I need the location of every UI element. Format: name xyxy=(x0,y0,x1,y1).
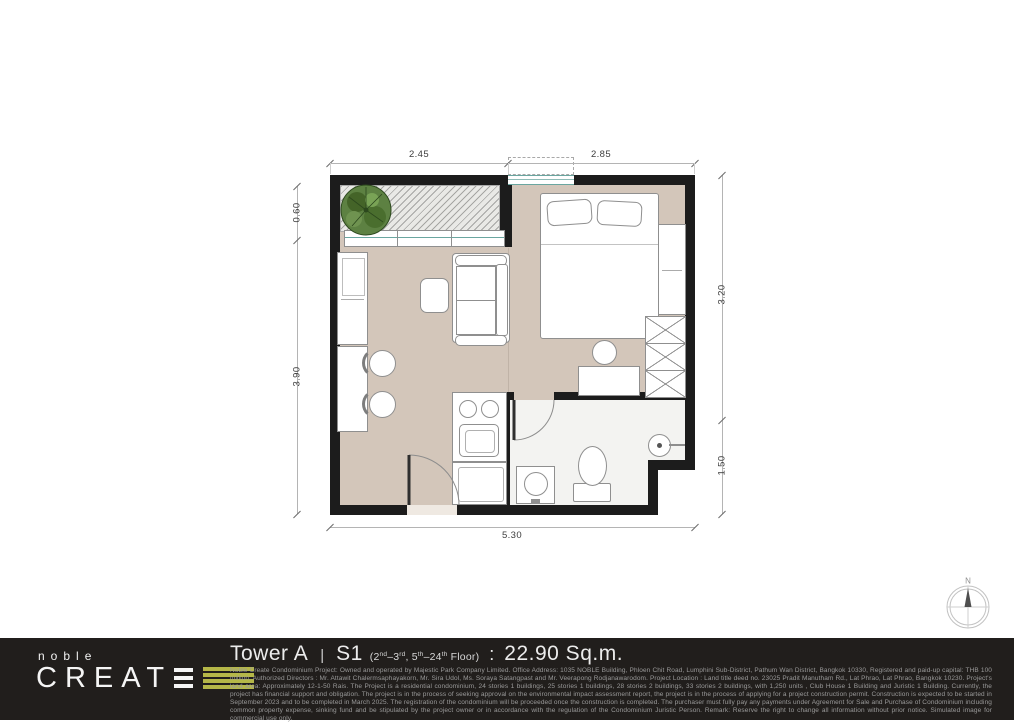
exterior-notch xyxy=(658,470,695,515)
title-separator: | xyxy=(320,647,324,664)
wall-right xyxy=(685,175,695,470)
dim-label-left-balcony: 0.60 xyxy=(291,188,304,238)
cabinet-inner-panel xyxy=(342,258,365,296)
unit-type: S1 xyxy=(336,642,363,666)
tall-cabinet xyxy=(337,252,368,345)
unit-area: 22.90 Sq.m. xyxy=(504,642,623,666)
appliance-unit xyxy=(452,462,507,505)
basin-tap xyxy=(531,499,540,504)
bedroom-window xyxy=(508,175,574,185)
bar xyxy=(174,668,193,672)
wardrobe xyxy=(645,316,686,398)
compass-north-icon: N xyxy=(947,577,989,629)
dim-label-top-left: 2.45 xyxy=(379,149,459,160)
appliance-inner xyxy=(458,467,504,502)
sofa-backrest xyxy=(496,264,508,336)
floor-range-part: (2 xyxy=(370,651,380,663)
toilet-bowl xyxy=(578,446,607,486)
floor-range-part: , 5 xyxy=(405,651,417,663)
compass-n-label: N xyxy=(965,577,971,586)
unit-title: Tower A | S1 (2nd–3rd, 5th–24th Floor) :… xyxy=(230,642,623,666)
footer-bar: noble CREAT Tower A | S1 (2nd–3rd, 5th–2… xyxy=(0,638,1014,720)
coffee-table xyxy=(420,278,449,313)
stool-seat xyxy=(369,350,396,377)
tower-name: Tower A xyxy=(230,642,308,666)
sink-basin-inner xyxy=(465,430,495,453)
entrance-threshold xyxy=(407,505,457,515)
kitchen-sink xyxy=(459,424,499,457)
floor-range-part: Floor) xyxy=(448,651,480,663)
balcony-sliding-door xyxy=(344,230,505,247)
compass-outer-ring xyxy=(947,586,989,628)
shower-head-dot xyxy=(657,443,662,448)
brand-e-glyph xyxy=(174,668,193,688)
nightstand-shelf xyxy=(658,224,686,315)
pillow xyxy=(546,198,593,226)
title-colon: : xyxy=(489,644,494,665)
bathroom-basin-bowl xyxy=(524,472,548,496)
compass-inner-ring xyxy=(950,589,986,625)
dim-ext-line xyxy=(508,163,509,174)
dim-label-top-right: 2.85 xyxy=(561,149,641,160)
wardrobe-section xyxy=(646,317,685,344)
dim-label-bottom: 5.30 xyxy=(472,530,552,541)
bar xyxy=(174,676,193,680)
wall-bottom-right-segment xyxy=(457,505,658,515)
stove-burner xyxy=(459,400,477,418)
dim-ext-line xyxy=(694,163,695,174)
dim-line-top xyxy=(330,163,695,164)
dim-label-right-lower: 1.50 xyxy=(716,441,729,491)
sofa-cushion xyxy=(456,266,496,301)
slider-mullion xyxy=(451,231,452,246)
wall-bottom-left-segment xyxy=(330,505,407,515)
floor-range-part: –24 xyxy=(424,651,442,663)
dim-label-right-upper: 3.20 xyxy=(716,270,729,320)
floorplan-page: { "plan": { "unit_outline": "studio unit… xyxy=(0,0,1014,720)
brand-logo: CREAT xyxy=(36,664,254,692)
wall-notch-vertical xyxy=(648,460,658,515)
stove-burner xyxy=(481,400,499,418)
bed-fold-line xyxy=(541,244,658,245)
dim-label-left-interior: 3.90 xyxy=(291,352,304,402)
floor-range: (2nd–3rd, 5th–24th Floor) xyxy=(370,651,479,663)
sofa-cushion xyxy=(456,300,496,335)
pillow xyxy=(596,200,642,227)
dressing-stool xyxy=(592,340,617,365)
floor-range-part: –3 xyxy=(387,651,399,663)
legal-disclaimer: Noble Create Condominium Project: Owned … xyxy=(230,667,992,723)
dim-line-bottom xyxy=(330,527,695,528)
wardrobe-section xyxy=(646,371,685,397)
slider-mullion xyxy=(397,231,398,246)
compass-needle xyxy=(965,588,972,607)
bar xyxy=(174,684,193,688)
balcony-floor xyxy=(340,185,500,232)
brand-create-text: CREAT xyxy=(36,664,172,692)
dim-ext-line xyxy=(330,163,331,174)
wardrobe-section xyxy=(646,344,685,371)
cabinet-split-line xyxy=(341,299,364,300)
shelf-split-line xyxy=(662,270,682,271)
dressing-table xyxy=(578,366,640,396)
wall-left xyxy=(330,175,340,515)
stool-seat xyxy=(369,391,396,418)
brand-noble-text: noble xyxy=(38,649,97,663)
sofa-armrest-bottom xyxy=(455,335,507,346)
